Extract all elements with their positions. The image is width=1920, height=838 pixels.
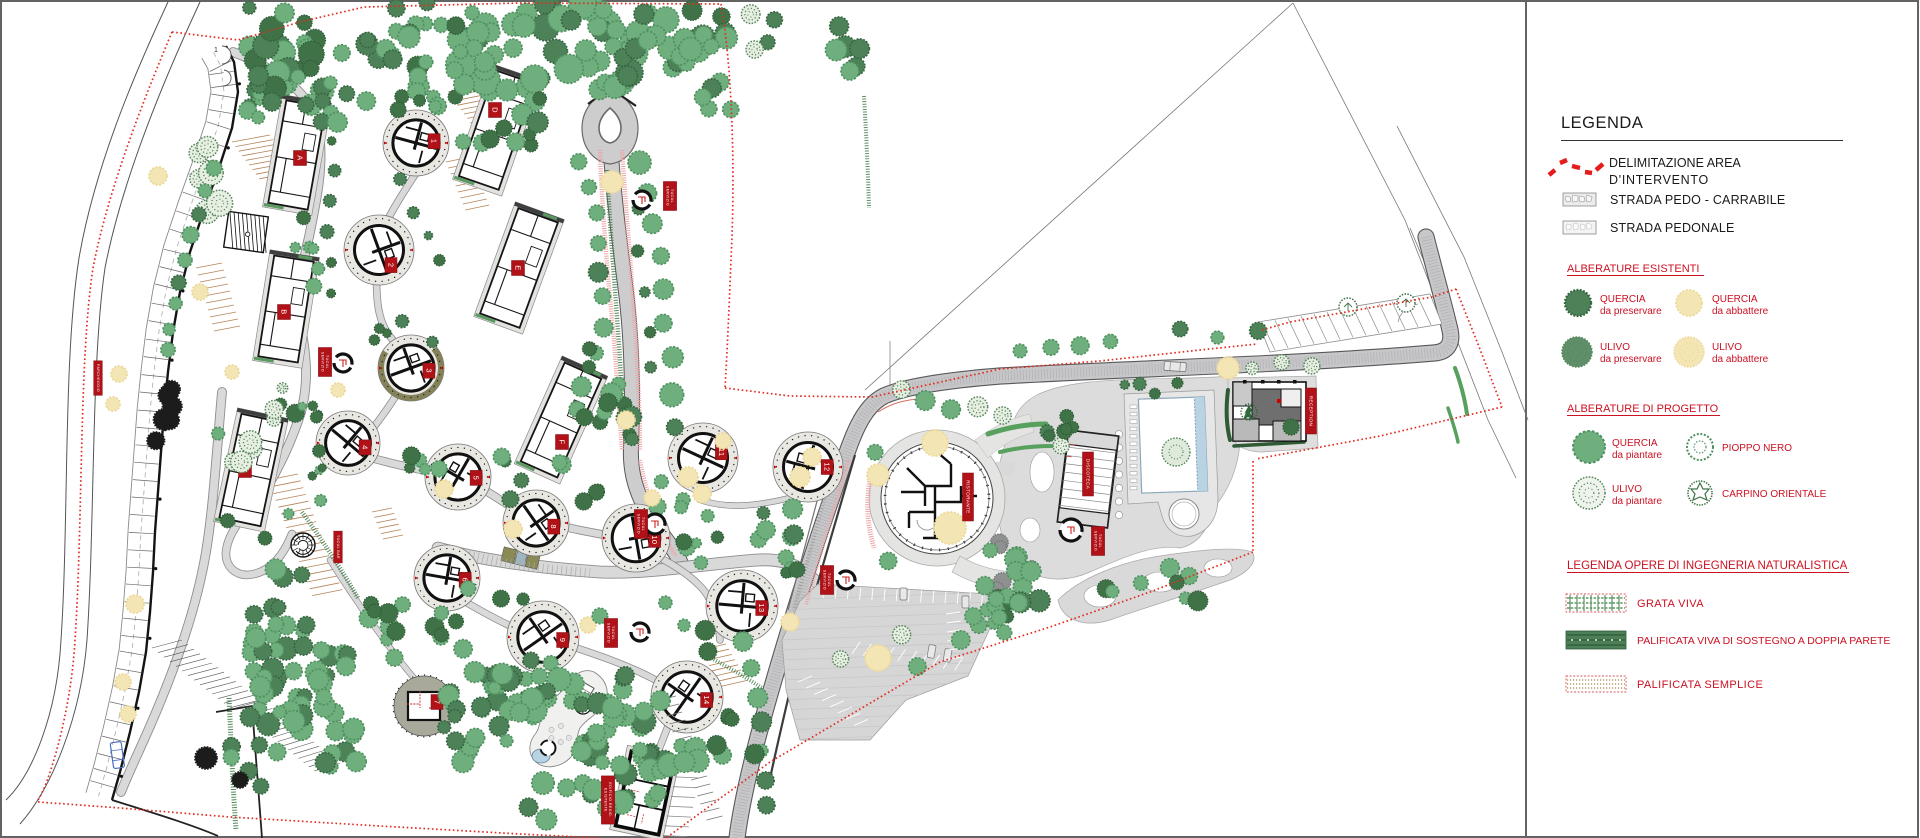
svg-text:LEGENDA OPERE DI INGEGNERIA NA: LEGENDA OPERE DI INGEGNERIA NATURALISTIC…	[1567, 560, 1848, 572]
svg-text:QUERCIA: QUERCIA	[1600, 294, 1646, 305]
svg-text:RISTORANTE: RISTORANTE	[965, 480, 970, 514]
svg-text:LEGENDA: LEGENDA	[1561, 114, 1643, 132]
svg-text:STRADA PEDONALE: STRADA PEDONALE	[1610, 221, 1735, 235]
svg-text:ULIVO: ULIVO	[1612, 484, 1642, 495]
svg-text:F: F	[557, 440, 566, 445]
svg-text:ESISTENTE: ESISTENTE	[604, 788, 608, 812]
svg-text:SERVIZIO: SERVIZIO	[607, 623, 611, 643]
svg-text:B: B	[279, 309, 288, 314]
svg-text:4: 4	[361, 445, 370, 450]
svg-text:ULIVO: ULIVO	[1600, 342, 1630, 353]
svg-text:da abbattere: da abbattere	[1712, 306, 1769, 317]
svg-text:2: 2	[386, 263, 395, 268]
svg-text:TUCUL BAR: TUCUL BAR	[336, 535, 340, 559]
svg-text:da preservare: da preservare	[1600, 306, 1662, 317]
svg-text:STRADA PEDO - CARRABILE: STRADA PEDO - CARRABILE	[1610, 193, 1785, 207]
svg-text:13: 13	[757, 603, 766, 612]
svg-text:SERVIZIO: SERVIZIO	[823, 570, 827, 590]
svg-text:RECEPTION: RECEPTION	[1308, 396, 1313, 426]
svg-text:ALBERATURE ESISTENTI: ALBERATURE ESISTENTI	[1567, 263, 1699, 275]
svg-text:9: 9	[558, 638, 567, 643]
svg-text:E: E	[513, 265, 522, 270]
svg-text:PARCHEGGIO: PARCHEGGIO	[96, 364, 100, 392]
svg-text:3: 3	[424, 368, 433, 373]
svg-text:12: 12	[823, 462, 832, 471]
svg-text:SERVIZIO: SERVIZIO	[1094, 531, 1098, 551]
svg-text:da piantare: da piantare	[1612, 496, 1662, 507]
svg-text:10: 10	[650, 535, 659, 544]
svg-text:PIOPPO NERO: PIOPPO NERO	[1722, 443, 1792, 454]
svg-text:da piantare: da piantare	[1612, 450, 1662, 461]
svg-text:SERVIZIO: SERVIZIO	[321, 352, 325, 372]
svg-text:SERVIZIO: SERVIZIO	[666, 186, 670, 206]
svg-text:14: 14	[702, 695, 711, 704]
svg-text:ULIVO: ULIVO	[1712, 342, 1742, 353]
svg-text:DELIMITAZIONE AREA: DELIMITAZIONE AREA	[1609, 156, 1741, 170]
svg-text:8: 8	[549, 524, 558, 529]
svg-text:PALIFICATA SEMPLICE: PALIFICATA SEMPLICE	[1637, 679, 1763, 691]
svg-text:GRATA VIVA: GRATA VIVA	[1637, 598, 1704, 610]
svg-text:DISCOTECA: DISCOTECA	[1085, 459, 1090, 490]
svg-text:A: A	[295, 155, 304, 160]
svg-text:SERVIZIO: SERVIZIO	[637, 514, 641, 534]
svg-text:D'INTERVENTO: D'INTERVENTO	[1609, 173, 1709, 187]
svg-text:PALIFICATA VIVA DI SOSTEGNO A: PALIFICATA VIVA DI SOSTEGNO A DOPPIA PAR…	[1637, 635, 1890, 647]
svg-text:1: 1	[214, 47, 218, 54]
svg-text:da preservare: da preservare	[1600, 354, 1662, 365]
svg-text:5: 5	[472, 476, 481, 481]
svg-text:QUERCIA: QUERCIA	[1712, 294, 1758, 305]
svg-text:da abbattere: da abbattere	[1712, 354, 1769, 365]
svg-text:CARPINO ORIENTALE: CARPINO ORIENTALE	[1722, 489, 1827, 500]
svg-text:QUERCIA: QUERCIA	[1612, 438, 1658, 449]
svg-text:ALBERATURE DI PROGETTO: ALBERATURE DI PROGETTO	[1567, 403, 1719, 415]
svg-text:1: 1	[430, 139, 439, 144]
svg-text:D: D	[490, 107, 499, 113]
